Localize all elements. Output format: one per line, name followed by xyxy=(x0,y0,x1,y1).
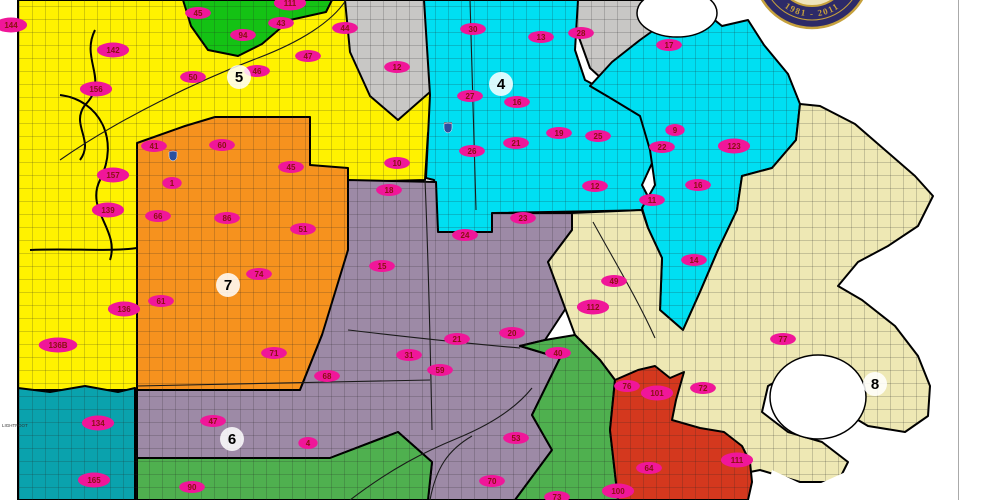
beat-marker[interactable]: 71 xyxy=(261,347,287,359)
beat-marker[interactable]: 23 xyxy=(510,212,536,224)
beat-marker[interactable]: 41 xyxy=(141,140,167,152)
beat-marker[interactable]: 136 xyxy=(108,302,140,317)
beat-number: 72 xyxy=(699,384,708,393)
beat-marker[interactable]: 12 xyxy=(384,61,410,73)
beat-marker[interactable]: 68 xyxy=(314,370,340,382)
beat-marker[interactable]: 27 xyxy=(457,90,483,102)
beat-number: 70 xyxy=(488,477,497,486)
beat-number: 139 xyxy=(101,206,115,215)
beat-number: 134 xyxy=(91,419,105,428)
beat-number: 12 xyxy=(591,182,600,191)
beat-number: 17 xyxy=(665,41,674,50)
beat-marker[interactable]: 9 xyxy=(665,124,684,136)
beat-number: 47 xyxy=(304,52,313,61)
beat-number: 45 xyxy=(287,163,296,172)
beat-number: 19 xyxy=(555,129,564,138)
beat-number: 53 xyxy=(512,434,521,443)
beat-marker[interactable]: 18 xyxy=(376,184,402,196)
beat-marker[interactable]: 22 xyxy=(649,141,675,153)
beat-number: 9 xyxy=(673,126,678,135)
beat-number: 142 xyxy=(106,46,120,55)
margin-labels: LIGHTFOOT xyxy=(2,423,28,428)
beat-marker[interactable]: 25 xyxy=(585,130,611,142)
interstate-shield-icon xyxy=(444,123,452,134)
beat-marker[interactable]: 13 xyxy=(528,31,554,43)
beat-marker[interactable]: 28 xyxy=(568,27,594,39)
beat-number: 43 xyxy=(277,19,286,28)
beat-marker[interactable]: 123 xyxy=(718,139,750,154)
beat-number: 47 xyxy=(209,417,218,426)
beat-marker[interactable]: 77 xyxy=(770,333,796,345)
beat-number: 111 xyxy=(731,456,744,465)
beat-marker[interactable]: 70 xyxy=(479,475,505,487)
beat-marker[interactable]: 94 xyxy=(230,29,256,41)
beat-marker[interactable]: 47 xyxy=(295,50,321,62)
beat-marker[interactable]: 19 xyxy=(546,127,572,139)
beat-marker[interactable]: 60 xyxy=(209,139,235,151)
beat-number: 46 xyxy=(253,67,262,76)
beat-number: 71 xyxy=(270,349,279,358)
beat-number: 136B xyxy=(48,341,67,350)
beat-marker[interactable]: 100 xyxy=(602,484,634,499)
beat-marker[interactable]: 11 xyxy=(639,194,665,206)
beat-number: 14 xyxy=(690,256,699,265)
beat-number: 49 xyxy=(610,277,619,286)
beat-number: 28 xyxy=(577,29,586,38)
district-number: 8 xyxy=(871,376,879,393)
beat-marker[interactable]: 17 xyxy=(656,39,682,51)
district-label: 5 xyxy=(227,65,251,89)
beat-number: 51 xyxy=(299,225,308,234)
district-label: 6 xyxy=(220,427,244,451)
beat-marker[interactable]: 142 xyxy=(97,43,129,58)
beat-marker[interactable]: 44 xyxy=(332,22,358,34)
beat-number: 11 xyxy=(648,196,657,205)
beat-number: 50 xyxy=(189,73,198,82)
beat-marker[interactable]: 40 xyxy=(545,347,571,359)
beat-number: 21 xyxy=(512,139,521,148)
beat-number: 61 xyxy=(157,297,166,306)
beat-number: 156 xyxy=(89,85,103,94)
interstate-shield-icon xyxy=(169,151,177,162)
beat-marker[interactable]: 14 xyxy=(681,254,707,266)
beat-number: 27 xyxy=(466,92,475,101)
beat-marker[interactable]: 26 xyxy=(459,145,485,157)
beat-number: 18 xyxy=(385,186,394,195)
beat-number: 23 xyxy=(519,214,528,223)
beat-marker[interactable]: 76 xyxy=(614,380,640,392)
beat-marker[interactable]: 139 xyxy=(92,203,124,218)
beat-marker[interactable]: 112 xyxy=(577,300,609,315)
beat-marker[interactable]: 1 xyxy=(162,177,181,189)
margin-street-label: LIGHTFOOT xyxy=(2,423,28,428)
beat-marker[interactable]: 20 xyxy=(499,327,525,339)
beat-number: 94 xyxy=(239,31,248,40)
beat-marker[interactable]: 4 xyxy=(298,437,317,449)
beat-marker[interactable]: 156 xyxy=(80,82,112,97)
beat-marker[interactable]: 45 xyxy=(185,7,211,19)
beat-number: 40 xyxy=(554,349,563,358)
beat-marker[interactable]: 136B xyxy=(39,338,78,353)
beat-number: 165 xyxy=(87,476,101,485)
beat-number: 45 xyxy=(194,9,203,18)
district-number: 5 xyxy=(235,69,243,86)
beat-marker[interactable]: 31 xyxy=(396,349,422,361)
beat-marker[interactable]: 111 xyxy=(721,453,753,468)
beat-marker[interactable]: 16 xyxy=(685,179,711,191)
beat-number: 86 xyxy=(223,214,232,223)
beat-number: 31 xyxy=(405,351,414,360)
beat-number: 123 xyxy=(727,142,741,151)
beat-number: 90 xyxy=(188,483,197,492)
beat-number: 111 xyxy=(284,0,297,8)
beat-number: 1 xyxy=(170,179,175,188)
beat-number: 22 xyxy=(658,143,667,152)
beat-number: 25 xyxy=(594,132,603,141)
beat-number: 16 xyxy=(513,98,522,107)
beat-marker[interactable]: 66 xyxy=(145,210,171,222)
beat-number: 16 xyxy=(694,181,703,190)
beat-marker[interactable]: 12 xyxy=(582,180,608,192)
district-number: 6 xyxy=(228,431,236,448)
beat-number: 21 xyxy=(453,335,462,344)
beat-number: 59 xyxy=(436,366,445,375)
beat-marker[interactable]: 16 xyxy=(504,96,530,108)
beat-number: 144 xyxy=(4,21,18,30)
beat-marker[interactable]: 50 xyxy=(180,71,206,83)
beat-number: 112 xyxy=(587,303,600,312)
beat-marker[interactable]: 59 xyxy=(427,364,453,376)
beat-number: 30 xyxy=(469,25,478,34)
beat-number: 100 xyxy=(611,487,625,496)
district-label: 4 xyxy=(489,72,513,96)
beat-number: 4 xyxy=(306,439,311,448)
beat-marker[interactable]: 72 xyxy=(690,382,716,394)
beat-marker[interactable]: 53 xyxy=(503,432,529,444)
beat-marker[interactable]: 43 xyxy=(268,17,294,29)
beat-number: 136 xyxy=(117,305,131,314)
beat-marker[interactable]: 101 xyxy=(641,386,673,401)
beat-number: 20 xyxy=(508,329,517,338)
beat-number: 60 xyxy=(218,141,227,150)
district-beat-map: 14414215645944311144475046157139136136B1… xyxy=(0,0,1000,500)
beat-marker[interactable]: 86 xyxy=(214,212,240,224)
beat-number: 73 xyxy=(553,493,562,500)
beat-number: 77 xyxy=(779,335,788,344)
beat-number: 24 xyxy=(461,231,470,240)
beat-number: 157 xyxy=(106,171,120,180)
beat-marker[interactable]: 165 xyxy=(78,473,110,488)
beat-marker[interactable]: 21 xyxy=(444,333,470,345)
beat-number: 12 xyxy=(393,63,402,72)
district-label: 8 xyxy=(863,372,887,396)
beat-marker[interactable]: 30 xyxy=(460,23,486,35)
beat-number: 101 xyxy=(650,389,664,398)
beat-marker[interactable]: 15 xyxy=(369,260,395,272)
beat-number: 64 xyxy=(645,464,654,473)
district-label: 7 xyxy=(216,273,240,297)
beat-number: 26 xyxy=(468,147,477,156)
beat-number: 41 xyxy=(150,142,159,151)
beat-marker[interactable]: 24 xyxy=(452,229,478,241)
beat-marker[interactable]: 51 xyxy=(290,223,316,235)
beat-number: 10 xyxy=(393,159,402,168)
beat-marker[interactable]: 10 xyxy=(384,157,410,169)
beat-marker[interactable]: 64 xyxy=(636,462,662,474)
beat-marker[interactable]: 47 xyxy=(200,415,226,427)
beat-number: 66 xyxy=(154,212,163,221)
beat-number: 15 xyxy=(378,262,387,271)
region-teal-zone[interactable] xyxy=(18,386,135,500)
beat-marker[interactable]: 157 xyxy=(97,168,129,183)
beat-number: 68 xyxy=(323,372,332,381)
beat-marker[interactable]: 134 xyxy=(82,416,114,431)
beat-marker[interactable]: 49 xyxy=(601,275,627,287)
beat-marker[interactable]: 21 xyxy=(503,137,529,149)
beat-marker[interactable]: 45 xyxy=(278,161,304,173)
district-number: 7 xyxy=(224,277,232,294)
beat-marker[interactable]: 90 xyxy=(179,481,205,493)
beat-number: 44 xyxy=(341,24,350,33)
beat-number: 76 xyxy=(623,382,632,391)
beat-marker[interactable]: 74 xyxy=(246,268,272,280)
beat-marker[interactable]: 61 xyxy=(148,295,174,307)
beat-number: 13 xyxy=(537,33,546,42)
district-number: 4 xyxy=(497,76,506,93)
beat-number: 74 xyxy=(255,270,264,279)
